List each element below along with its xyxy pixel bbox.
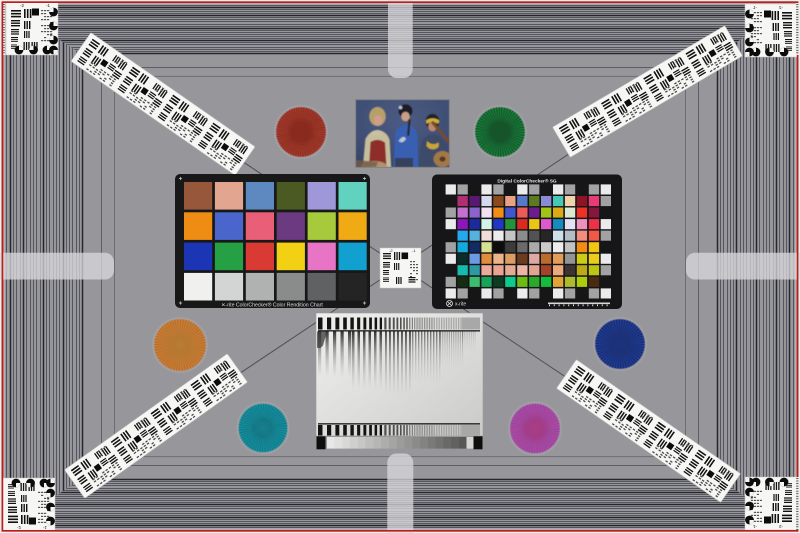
svg-text:✕-rite ColorChecker® Color Ren: ✕-rite ColorChecker® Color Rendition Cha… (221, 302, 323, 309)
svg-text:Digital ColorChecker® SG: Digital ColorChecker® SG (497, 178, 557, 185)
svg-text:x-rite: x-rite (455, 302, 466, 308)
